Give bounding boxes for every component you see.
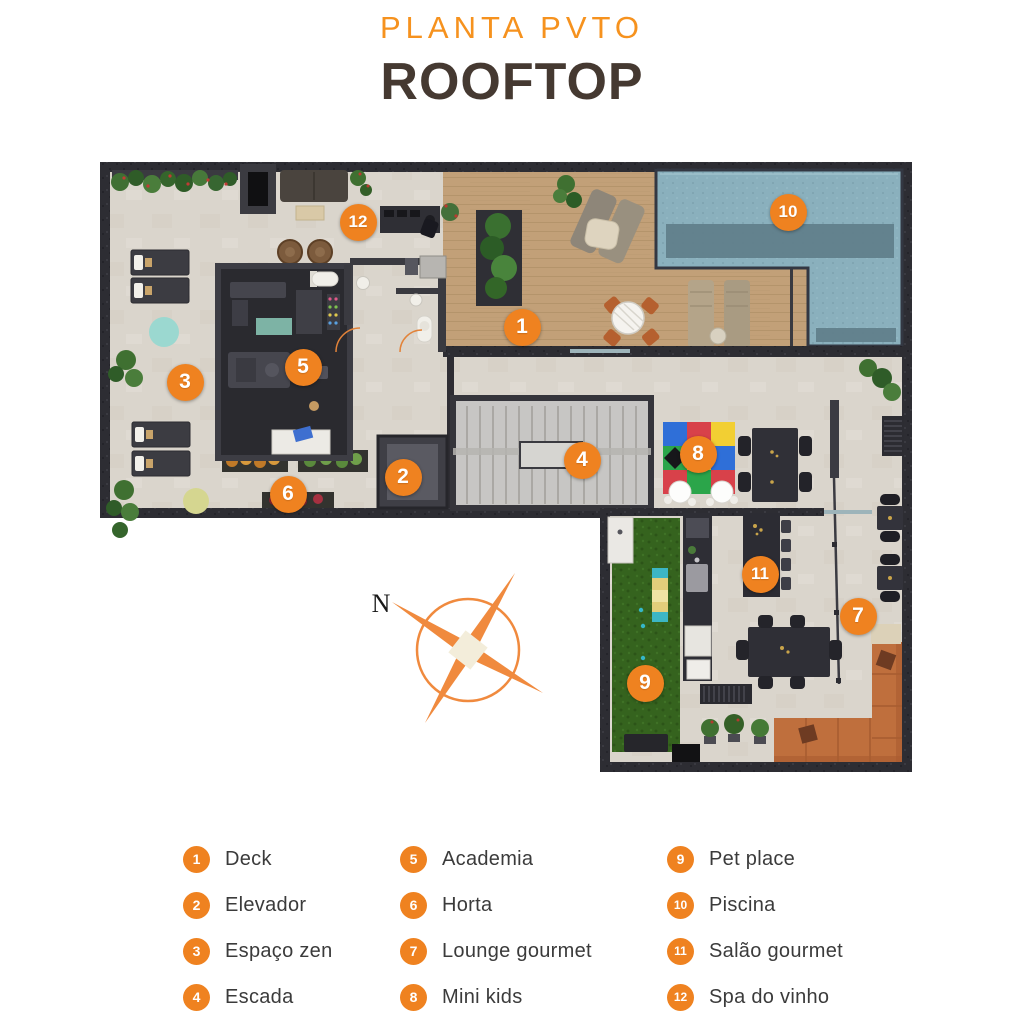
legend-number: 4: [183, 984, 210, 1011]
page: PLANTA PVTO ROOFTOP: [0, 0, 1024, 1024]
plan-marker-academia: 5: [285, 349, 322, 386]
legend-label: Lounge gourmet: [442, 940, 592, 963]
plan-marker-pet-place: 9: [627, 665, 664, 702]
legend-number: 6: [400, 892, 427, 919]
legend-number: 9: [667, 846, 694, 873]
legend-number: 3: [183, 938, 210, 965]
legend-column-2: 5Academia6Horta7Lounge gourmet8Mini kids: [400, 836, 592, 1020]
legend-label: Espaço zen: [225, 940, 333, 963]
legend-item-sal-o-gourmet: 11Salão gourmet: [667, 928, 843, 974]
legend-number: 11: [667, 938, 694, 965]
plan-marker-espaco-zen: 3: [167, 364, 204, 401]
legend-label: Salão gourmet: [709, 940, 843, 963]
legend-label: Deck: [225, 848, 272, 871]
legend-label: Horta: [442, 894, 492, 917]
floor-plan: N 123456789101112: [100, 160, 914, 774]
legend-number: 7: [400, 938, 427, 965]
legend-item-pet-place: 9Pet place: [667, 836, 843, 882]
legend-item-piscina: 10Piscina: [667, 882, 843, 928]
legend-item-escada: 4Escada: [183, 974, 333, 1020]
legend-label: Spa do vinho: [709, 986, 829, 1009]
legend-number: 10: [667, 892, 694, 919]
plan-marker-mini-kids: 8: [680, 436, 717, 473]
legend-item-academia: 5Academia: [400, 836, 592, 882]
plan-markers: 123456789101112: [100, 160, 914, 774]
plan-marker-escada: 4: [564, 442, 601, 479]
plan-marker-spa-do-vinho: 12: [340, 204, 377, 241]
plan-marker-salao-gourmet: 11: [742, 556, 779, 593]
legend-label: Elevador: [225, 894, 306, 917]
legend-item-lounge-gourmet: 7Lounge gourmet: [400, 928, 592, 974]
legend-column-3: 9Pet place10Piscina11Salão gourmet12Spa …: [667, 836, 843, 1020]
plan-title: ROOFTOP: [0, 52, 1024, 112]
legend-label: Academia: [442, 848, 533, 871]
legend-label: Mini kids: [442, 986, 523, 1009]
legend-item-horta: 6Horta: [400, 882, 592, 928]
legend-item-spa-do-vinho: 12Spa do vinho: [667, 974, 843, 1020]
legend-number: 8: [400, 984, 427, 1011]
legend-item-espa-o-zen: 3Espaço zen: [183, 928, 333, 974]
legend-label: Pet place: [709, 848, 795, 871]
legend-item-deck: 1Deck: [183, 836, 333, 882]
legend-item-mini-kids: 8Mini kids: [400, 974, 592, 1020]
title-block: PLANTA PVTO ROOFTOP: [0, 0, 1024, 112]
legend-number: 2: [183, 892, 210, 919]
plan-marker-horta: 6: [270, 476, 307, 513]
legend-column-1: 1Deck2Elevador3Espaço zen4Escada: [183, 836, 333, 1020]
legend-number: 5: [400, 846, 427, 873]
legend-number: 1: [183, 846, 210, 873]
legend-item-elevador: 2Elevador: [183, 882, 333, 928]
legend-label: Piscina: [709, 894, 776, 917]
plan-marker-lounge-gourmet: 7: [840, 598, 877, 635]
legend-label: Escada: [225, 986, 294, 1009]
plan-marker-deck: 1: [504, 309, 541, 346]
plan-marker-elevador: 2: [385, 459, 422, 496]
legend-number: 12: [667, 984, 694, 1011]
plan-marker-piscina: 10: [770, 194, 807, 231]
legend: 1Deck2Elevador3Espaço zen4Escada5Academi…: [0, 836, 1024, 1024]
plan-subtitle: PLANTA PVTO: [0, 10, 1024, 46]
